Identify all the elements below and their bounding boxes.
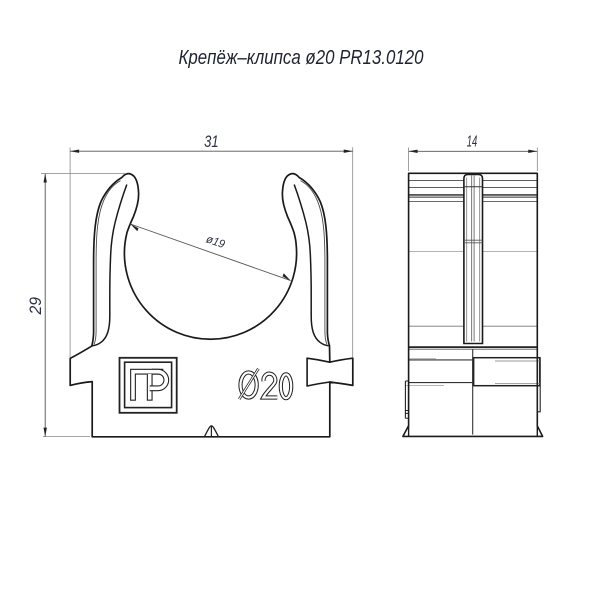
svg-text:Крепёж–клипса ø20 PR13.0120: Крепёж–клипса ø20 PR13.0120 — [179, 46, 424, 69]
svg-text:29: 29 — [26, 297, 45, 316]
svg-text:31: 31 — [204, 132, 219, 151]
svg-text:14: 14 — [467, 134, 478, 151]
svg-text:ø19: ø19 — [204, 234, 226, 252]
